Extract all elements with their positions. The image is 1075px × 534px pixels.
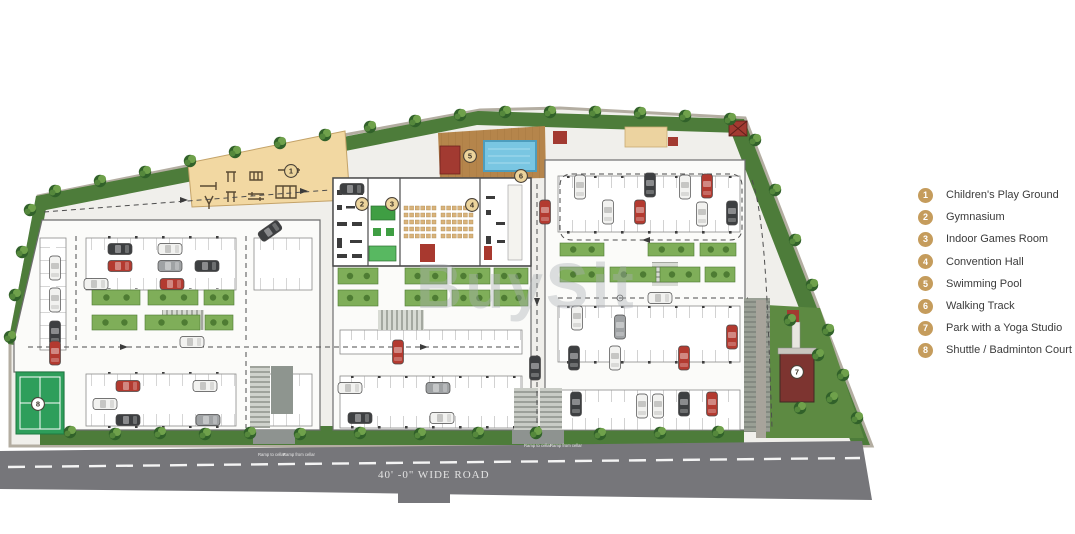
- tree: [749, 134, 761, 146]
- chair: [421, 220, 425, 224]
- planter: [205, 315, 233, 330]
- chair: [421, 213, 425, 217]
- tree: [9, 289, 21, 301]
- planter: [204, 290, 234, 305]
- car: [108, 244, 132, 255]
- chair: [463, 234, 467, 238]
- amenity-marker-1: 1: [285, 165, 298, 178]
- chair: [415, 206, 419, 210]
- car: [393, 340, 404, 364]
- tree: [199, 428, 211, 440]
- amenity-marker-4: 4: [466, 199, 479, 212]
- tree: [794, 402, 806, 414]
- chair: [452, 213, 456, 217]
- planter: [148, 290, 198, 305]
- chair: [426, 227, 430, 231]
- car: [635, 200, 646, 224]
- car: [160, 279, 184, 290]
- car: [707, 392, 718, 416]
- chair: [404, 220, 408, 224]
- planter: [648, 243, 694, 256]
- car: [680, 175, 691, 199]
- legend-item-2: 2Gymnasium: [918, 206, 1075, 228]
- car: [116, 381, 140, 392]
- car: [50, 256, 61, 280]
- chair: [441, 206, 445, 210]
- car: [116, 415, 140, 426]
- tree: [634, 107, 646, 119]
- chair: [447, 213, 451, 217]
- chair: [463, 227, 467, 231]
- chair: [415, 213, 419, 217]
- chair: [404, 206, 408, 210]
- chair: [415, 220, 419, 224]
- tree: [184, 155, 196, 167]
- car: [338, 383, 362, 394]
- legend-item-3: 3Indoor Games Room: [918, 228, 1075, 250]
- car: [727, 325, 738, 349]
- tree: [837, 369, 849, 381]
- legend-item-4: 4Convention Hall: [918, 251, 1075, 273]
- legend-number-badge: 4: [918, 254, 933, 269]
- planter: [700, 243, 736, 256]
- legend-label: Park with a Yoga Studio: [946, 322, 1062, 334]
- chair: [458, 234, 462, 238]
- tree: [319, 129, 331, 141]
- car: [348, 413, 372, 424]
- legend-label: Children's Play Ground: [946, 189, 1059, 201]
- tree: [530, 427, 542, 439]
- tree: [654, 427, 666, 439]
- chair: [415, 227, 419, 231]
- svg-text:7: 7: [795, 368, 799, 377]
- planter: [92, 290, 140, 305]
- car: [158, 244, 182, 255]
- car: [679, 346, 690, 370]
- tree: [826, 392, 838, 404]
- childrens-play-ground: [188, 131, 350, 209]
- amenities-legend: 1Children's Play Ground2Gymnasium3Indoor…: [918, 184, 1075, 362]
- legend-item-7: 7Park with a Yoga Studio: [918, 317, 1075, 339]
- watermark: BuySit: [416, 250, 637, 322]
- road: 40' -0" WIDE ROAD Ramp to cellar Ramp fr…: [0, 441, 872, 503]
- chair: [426, 234, 430, 238]
- legend-number-badge: 5: [918, 276, 933, 291]
- tree: [294, 428, 306, 440]
- chair: [410, 227, 414, 231]
- chair: [404, 227, 408, 231]
- chair: [458, 213, 462, 217]
- pool-side-structure: [440, 146, 460, 174]
- tree: [454, 109, 466, 121]
- chair: [432, 213, 436, 217]
- chair: [432, 227, 436, 231]
- ramp-label: Ramp to cellar: [258, 452, 286, 457]
- car: [702, 174, 713, 198]
- chair: [421, 234, 425, 238]
- tree: [812, 349, 824, 361]
- tree: [851, 412, 863, 424]
- car: [727, 201, 738, 225]
- car: [196, 415, 220, 426]
- car: [108, 261, 132, 272]
- road-label: 40' -0" WIDE ROAD: [378, 469, 490, 481]
- svg-text:2: 2: [360, 200, 364, 209]
- ramp-label: Ramp from cellar: [283, 452, 315, 457]
- tree: [154, 427, 166, 439]
- car: [637, 394, 648, 418]
- tree: [806, 279, 818, 291]
- chair: [469, 213, 473, 217]
- tree: [724, 113, 736, 125]
- tree: [354, 427, 366, 439]
- chair: [426, 213, 430, 217]
- amenity-marker-6: 6: [515, 170, 528, 183]
- tree: [364, 121, 376, 133]
- car: [93, 399, 117, 410]
- chair: [447, 206, 451, 210]
- chair: [410, 213, 414, 217]
- car: [653, 394, 664, 418]
- planter: [660, 267, 700, 282]
- chair: [469, 234, 473, 238]
- chair: [458, 227, 462, 231]
- chair: [463, 213, 467, 217]
- chair: [426, 206, 430, 210]
- tree: [679, 110, 691, 122]
- tree: [139, 166, 151, 178]
- amenity-marker-5: 5: [464, 150, 477, 163]
- site-plan-drawing: 40' -0" WIDE ROAD Ramp to cellar Ramp fr…: [0, 0, 1075, 534]
- car: [426, 383, 450, 394]
- chair: [452, 227, 456, 231]
- car: [603, 200, 614, 224]
- planter: [705, 267, 735, 282]
- chair: [410, 234, 414, 238]
- legend-label: Gymnasium: [946, 211, 1005, 223]
- chair: [441, 234, 445, 238]
- tree: [594, 428, 606, 440]
- legend-label: Convention Hall: [946, 256, 1024, 268]
- car: [645, 173, 656, 197]
- svg-text:1: 1: [289, 167, 293, 176]
- tree: [16, 246, 28, 258]
- ramp-label: Ramp from cellar: [550, 443, 582, 448]
- tree: [109, 428, 121, 440]
- site-plan-page: 40' -0" WIDE ROAD Ramp to cellar Ramp fr…: [0, 0, 1075, 534]
- tree: [769, 184, 781, 196]
- chair: [469, 220, 473, 224]
- tree: [789, 234, 801, 246]
- tree: [499, 106, 511, 118]
- chair: [447, 234, 451, 238]
- car: [569, 346, 580, 370]
- svg-text:8: 8: [36, 400, 40, 409]
- legend-number-badge: 7: [918, 321, 933, 336]
- tan-structure: [625, 127, 667, 147]
- chair: [410, 206, 414, 210]
- legend-label: Walking Track: [946, 300, 1015, 312]
- legend-item-5: 5Swimming Pool: [918, 273, 1075, 295]
- legend-number-badge: 6: [918, 299, 933, 314]
- svg-text:6: 6: [519, 172, 523, 181]
- car: [571, 392, 582, 416]
- legend-item-6: 6Walking Track: [918, 295, 1075, 317]
- car: [50, 288, 61, 312]
- ramp-label: Ramp to cellar: [524, 443, 552, 448]
- legend-label: Swimming Pool: [946, 278, 1022, 290]
- chair: [441, 220, 445, 224]
- car: [50, 341, 61, 365]
- chair: [463, 220, 467, 224]
- swimming-pool-area: [438, 126, 546, 180]
- chair: [432, 220, 436, 224]
- car: [540, 200, 551, 224]
- legend-number-badge: 8: [918, 343, 933, 358]
- chair: [415, 234, 419, 238]
- tree: [94, 175, 106, 187]
- legend-number-badge: 1: [918, 188, 933, 203]
- legend-label: Shuttle / Badminton Court: [946, 344, 1072, 356]
- chair: [452, 206, 456, 210]
- tree: [4, 331, 16, 343]
- car: [530, 356, 541, 380]
- legend-label: Indoor Games Room: [946, 233, 1048, 245]
- amenity-marker-2: 2: [356, 198, 369, 211]
- chair: [469, 227, 473, 231]
- tree: [712, 426, 724, 438]
- planter: [92, 315, 137, 330]
- chair: [421, 206, 425, 210]
- tree: [64, 426, 76, 438]
- chair: [441, 227, 445, 231]
- car: [84, 279, 108, 290]
- car: [195, 261, 219, 272]
- chair: [432, 234, 436, 238]
- tree: [24, 204, 36, 216]
- chair: [458, 206, 462, 210]
- legend-item-8: 8Shuttle / Badminton Court: [918, 339, 1075, 361]
- chair: [458, 220, 462, 224]
- planter: [338, 268, 378, 284]
- amenity-marker-3: 3: [386, 198, 399, 211]
- tree: [589, 106, 601, 118]
- car: [575, 175, 586, 199]
- car: [158, 261, 182, 272]
- legend-number-badge: 3: [918, 232, 933, 247]
- tree: [784, 314, 796, 326]
- planter: [338, 290, 378, 306]
- tree: [274, 137, 286, 149]
- amenity-marker-8: 8: [32, 398, 45, 411]
- planter: [145, 315, 200, 330]
- tree: [822, 324, 834, 336]
- tree: [244, 427, 256, 439]
- chair: [441, 213, 445, 217]
- chair: [452, 234, 456, 238]
- car: [648, 293, 672, 304]
- svg-text:5: 5: [468, 152, 472, 161]
- legend-number-badge: 2: [918, 210, 933, 225]
- chair: [404, 234, 408, 238]
- car: [340, 184, 364, 195]
- legend-item-1: 1Children's Play Ground: [918, 184, 1075, 206]
- tree: [409, 115, 421, 127]
- svg-text:3: 3: [390, 200, 394, 209]
- tree: [472, 427, 484, 439]
- car: [610, 346, 621, 370]
- chair: [447, 227, 451, 231]
- chair: [447, 220, 451, 224]
- chair: [426, 220, 430, 224]
- car: [679, 392, 690, 416]
- tree: [414, 428, 426, 440]
- chair: [421, 227, 425, 231]
- chair: [404, 213, 408, 217]
- chair: [452, 220, 456, 224]
- legend-list: 1Children's Play Ground2Gymnasium3Indoor…: [918, 184, 1075, 362]
- tree: [49, 185, 61, 197]
- car: [193, 381, 217, 392]
- car: [430, 413, 454, 424]
- chair: [432, 206, 436, 210]
- chair: [410, 220, 414, 224]
- car: [697, 202, 708, 226]
- amenity-marker-7: 7: [791, 366, 804, 379]
- tree: [229, 146, 241, 158]
- tree: [544, 106, 556, 118]
- car: [180, 337, 204, 348]
